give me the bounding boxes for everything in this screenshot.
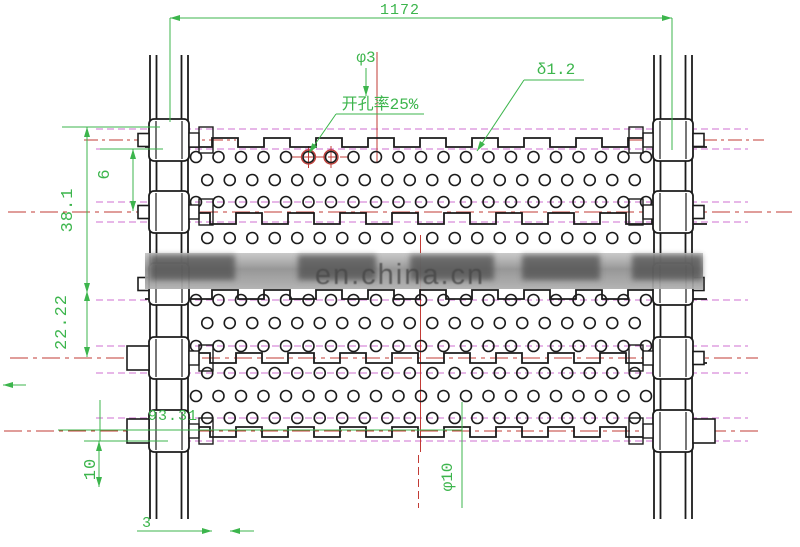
cad-drawing-canvas: en.china.cn 1172 φ3 开孔率25% δ1.2 38.1 6 2… bbox=[0, 0, 800, 547]
dim-tab-height: 10 bbox=[82, 458, 101, 480]
watermark-text: en.china.cn bbox=[315, 259, 485, 291]
dim-plate-thickness: δ1.2 bbox=[537, 61, 575, 79]
dim-row-spacing: 22.22 bbox=[53, 294, 72, 350]
label-open-area: 开孔率25% bbox=[342, 95, 419, 114]
dim-pitch: 38.1 bbox=[59, 188, 78, 233]
dim-bar-thickness: 3 bbox=[142, 515, 152, 532]
dim-total-width: 1172 bbox=[380, 2, 420, 19]
dim-roller-diameter: φ10 bbox=[439, 463, 457, 492]
dim-side-margin: 93.31 bbox=[148, 408, 198, 425]
technical-drawing: en.china.cn 1172 φ3 开孔率25% δ1.2 38.1 6 2… bbox=[0, 0, 800, 547]
dim-edge-offset: 6 bbox=[96, 168, 115, 179]
dim-hole-diameter: φ3 bbox=[356, 49, 375, 67]
